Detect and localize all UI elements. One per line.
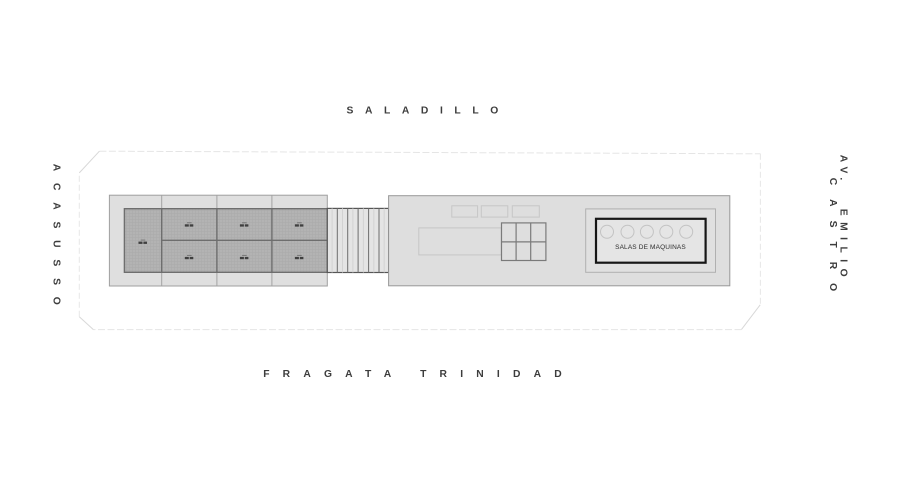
svg-text:AV.: AV. <box>838 155 849 185</box>
svg-text:EMILIO: EMILIO <box>838 209 849 283</box>
svg-text:ACASUSSO: ACASUSSO <box>51 164 62 317</box>
svg-text:CASTRO: CASTRO <box>827 178 838 305</box>
svg-text:SALADILLO: SALADILLO <box>347 106 510 117</box>
svg-text:FRAGATA TRINIDAD: FRAGATA TRINIDAD <box>263 369 575 380</box>
svg-text:SALAS DE MAQUINAS: SALAS DE MAQUINAS <box>615 244 686 251</box>
